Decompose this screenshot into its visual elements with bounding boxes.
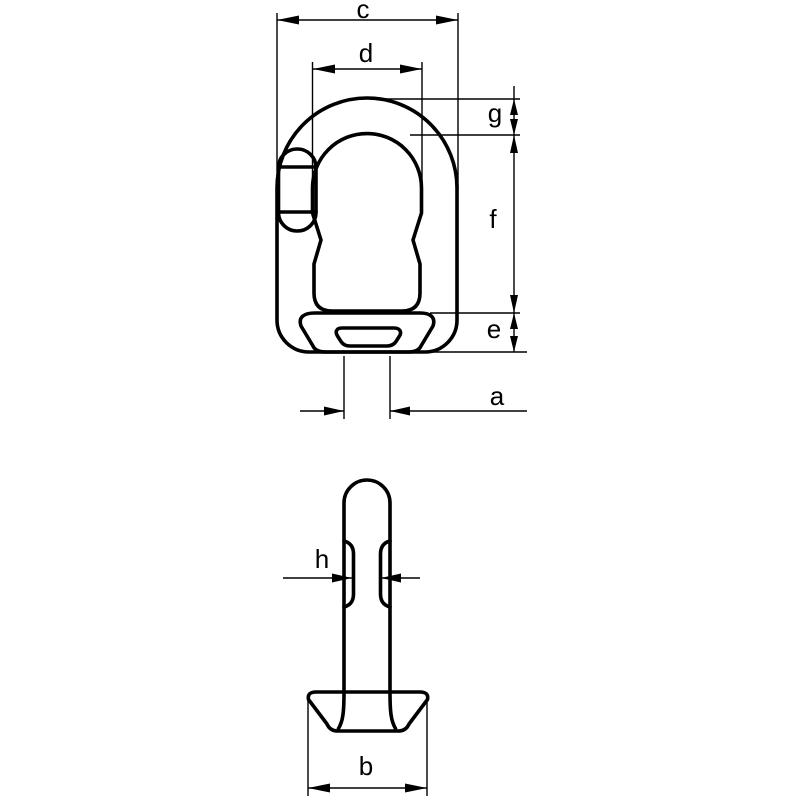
dim-f-label: f bbox=[489, 204, 497, 234]
dimension-a: a bbox=[300, 356, 527, 419]
dim-h-arrow-left bbox=[332, 574, 352, 583]
dim-c-label: c bbox=[357, 0, 370, 24]
side-shank-flare-left bbox=[339, 692, 345, 729]
front-view bbox=[277, 98, 457, 352]
dim-b-arrow-right bbox=[405, 784, 427, 793]
dim-b-arrow-left bbox=[308, 784, 330, 793]
technical-drawing: c d g f bbox=[0, 0, 800, 800]
front-base-slot-outline bbox=[336, 328, 400, 346]
dim-g-arrow-down bbox=[510, 119, 518, 135]
dimension-d: d bbox=[313, 38, 423, 183]
side-view bbox=[308, 480, 427, 731]
dim-a-label: a bbox=[490, 381, 505, 411]
dim-c-arrow-right bbox=[436, 16, 458, 25]
dimension-c: c bbox=[277, 0, 458, 190]
dim-e-label: e bbox=[487, 314, 501, 344]
dim-d-arrow-left bbox=[313, 65, 335, 74]
dim-e-arrow-up bbox=[510, 313, 518, 329]
dim-c-arrow-left bbox=[277, 16, 299, 25]
dim-g-arrow-up bbox=[510, 99, 518, 115]
dimension-f: f bbox=[489, 135, 518, 313]
side-shank-outline bbox=[344, 480, 390, 692]
dim-h-label: h bbox=[315, 544, 329, 574]
latch-capsule-outline bbox=[279, 149, 317, 231]
technical-drawing-page: c d g f bbox=[0, 0, 800, 800]
dim-f-arrow-up bbox=[510, 135, 518, 153]
dim-a-arrow-left bbox=[324, 407, 344, 416]
dim-e-arrow-down bbox=[510, 336, 518, 352]
dim-f-arrow-down bbox=[510, 295, 518, 313]
dim-d-arrow-right bbox=[400, 65, 422, 74]
dimensions: c d g f bbox=[277, 0, 527, 796]
dim-a-arrow-right bbox=[390, 407, 410, 416]
dim-g-label: g bbox=[488, 98, 502, 128]
front-inner-opening-outline bbox=[313, 134, 422, 311]
dim-d-label: d bbox=[359, 38, 373, 68]
side-shank-flare-right bbox=[390, 692, 396, 729]
dimension-b: b bbox=[308, 699, 427, 796]
dim-b-label: b bbox=[359, 751, 373, 781]
side-base-outline bbox=[308, 692, 427, 731]
dimension-g: g bbox=[383, 86, 520, 135]
